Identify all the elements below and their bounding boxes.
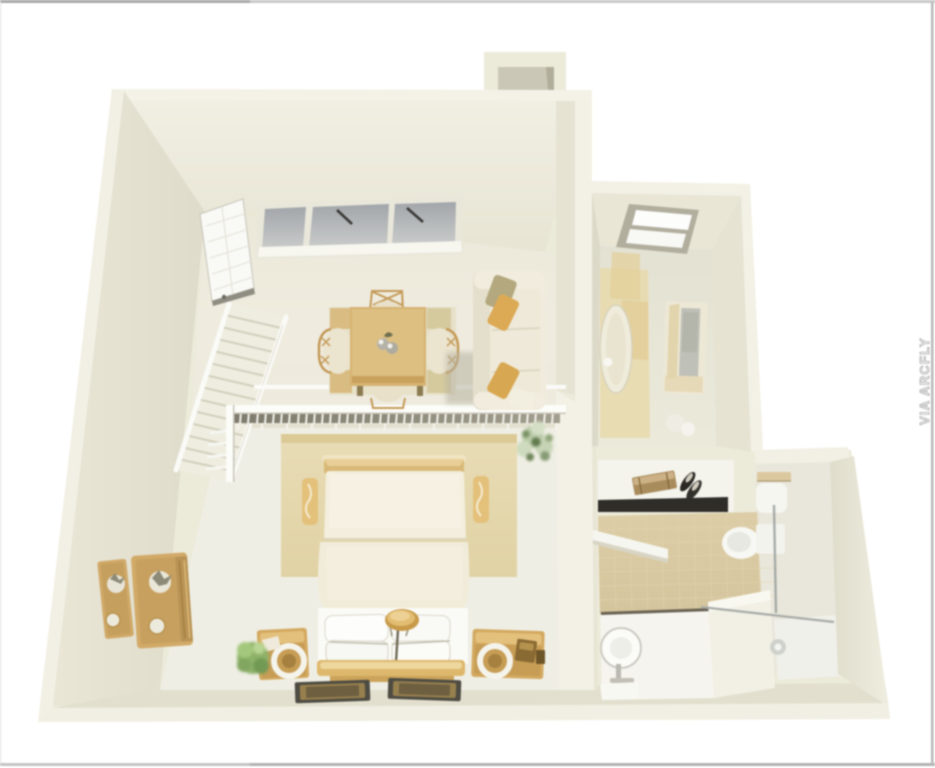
svg-text:VIA ARCFLY: VIA ARCFLY: [917, 337, 932, 425]
